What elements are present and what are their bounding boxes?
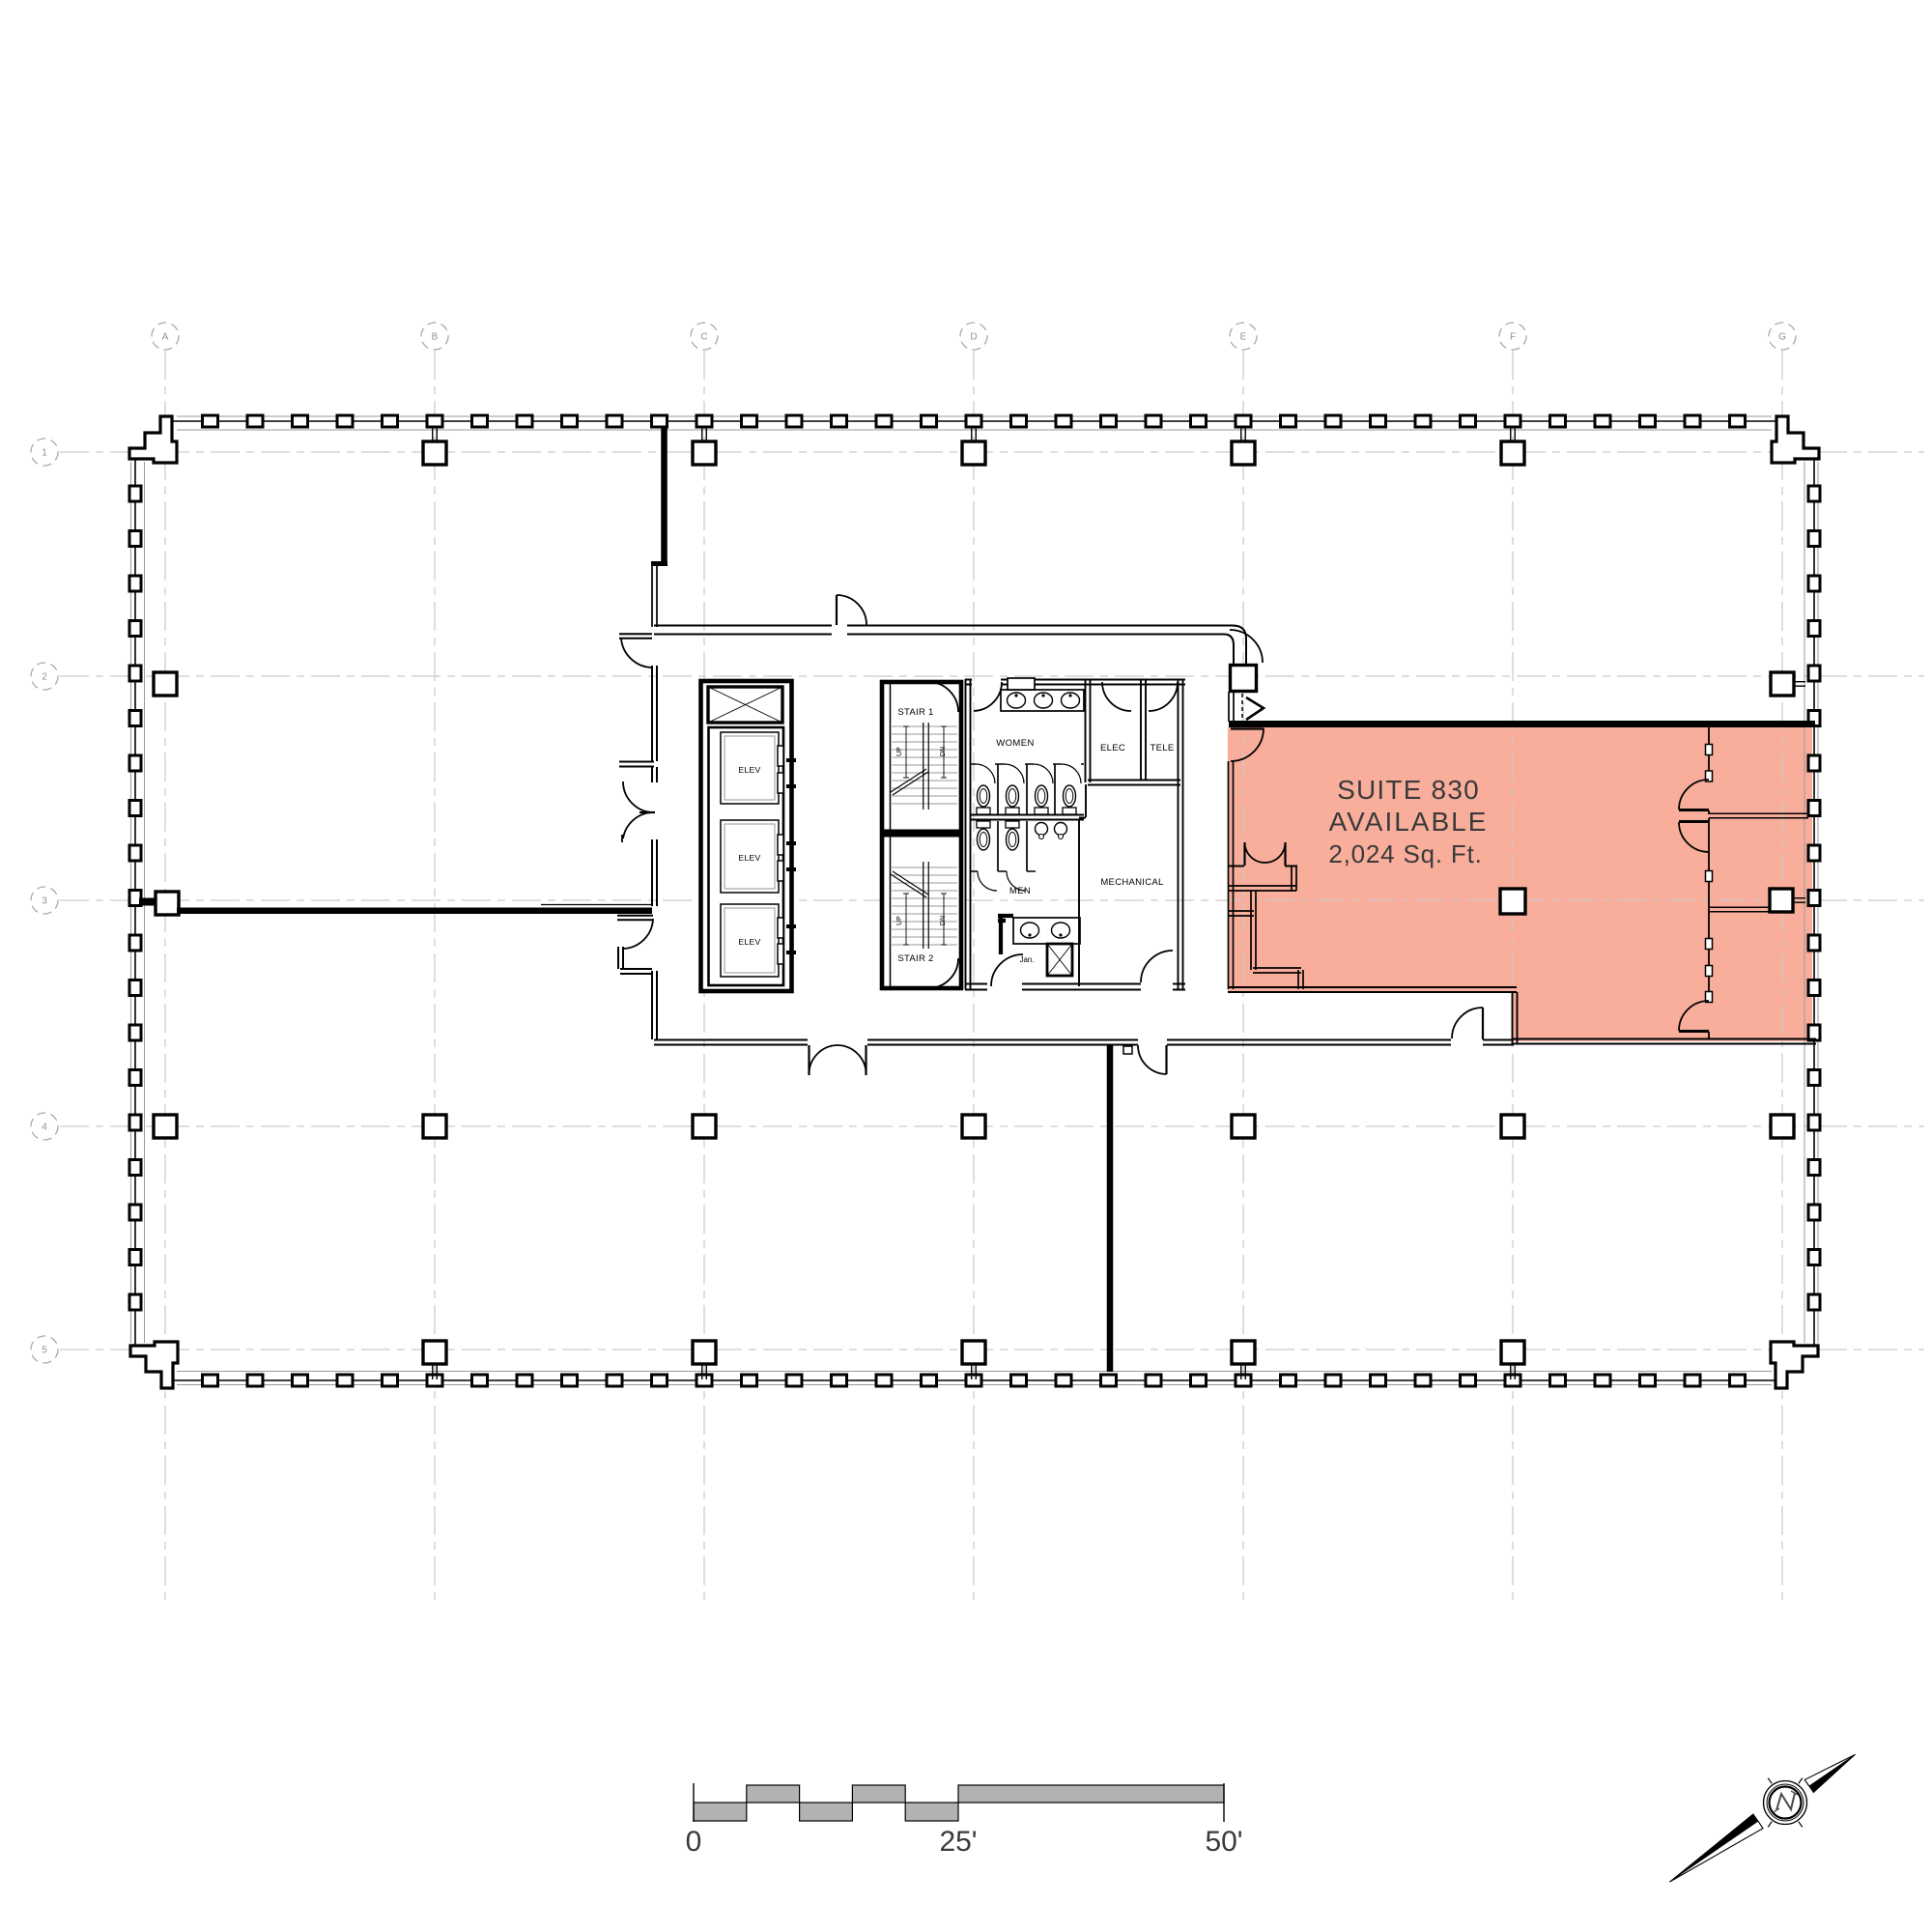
svg-text:B: B xyxy=(432,332,439,343)
svg-text:C: C xyxy=(700,332,707,343)
svg-text:ELEV: ELEV xyxy=(738,765,760,775)
svg-text:2: 2 xyxy=(42,672,47,683)
svg-text:A: A xyxy=(162,332,169,343)
svg-text:4: 4 xyxy=(42,1122,47,1133)
svg-text:STAIR 1: STAIR 1 xyxy=(897,707,933,718)
svg-text:25': 25' xyxy=(939,1826,977,1858)
svg-text:DN: DN xyxy=(940,916,947,925)
svg-text:STAIR 2: STAIR 2 xyxy=(897,953,933,964)
svg-text:UP: UP xyxy=(896,747,903,756)
svg-text:ELEC: ELEC xyxy=(1100,743,1125,753)
svg-text:D: D xyxy=(970,332,977,343)
svg-text:F: F xyxy=(1510,332,1516,343)
svg-text:MECHANICAL: MECHANICAL xyxy=(1100,877,1163,888)
svg-text:2,024 Sq. Ft.: 2,024 Sq. Ft. xyxy=(1328,839,1482,868)
svg-text:1: 1 xyxy=(42,448,47,459)
svg-text:ELEV: ELEV xyxy=(738,853,760,863)
svg-text:ELEV: ELEV xyxy=(738,937,760,947)
svg-text:DN: DN xyxy=(940,747,947,756)
svg-text:WOMEN: WOMEN xyxy=(996,738,1034,749)
svg-text:TELE: TELE xyxy=(1151,743,1175,753)
svg-text:AVAILABLE: AVAILABLE xyxy=(1329,807,1489,837)
svg-text:SUITE 830: SUITE 830 xyxy=(1337,775,1480,805)
svg-text:5: 5 xyxy=(42,1346,47,1356)
svg-text:MEN: MEN xyxy=(1009,886,1031,896)
svg-text:3: 3 xyxy=(42,896,47,907)
svg-text:Jan.: Jan. xyxy=(1019,955,1034,964)
svg-text:G: G xyxy=(1778,332,1786,343)
svg-text:E: E xyxy=(1240,332,1247,343)
svg-text:UP: UP xyxy=(896,916,903,925)
svg-text:0: 0 xyxy=(686,1826,702,1858)
svg-text:50': 50' xyxy=(1205,1826,1242,1858)
